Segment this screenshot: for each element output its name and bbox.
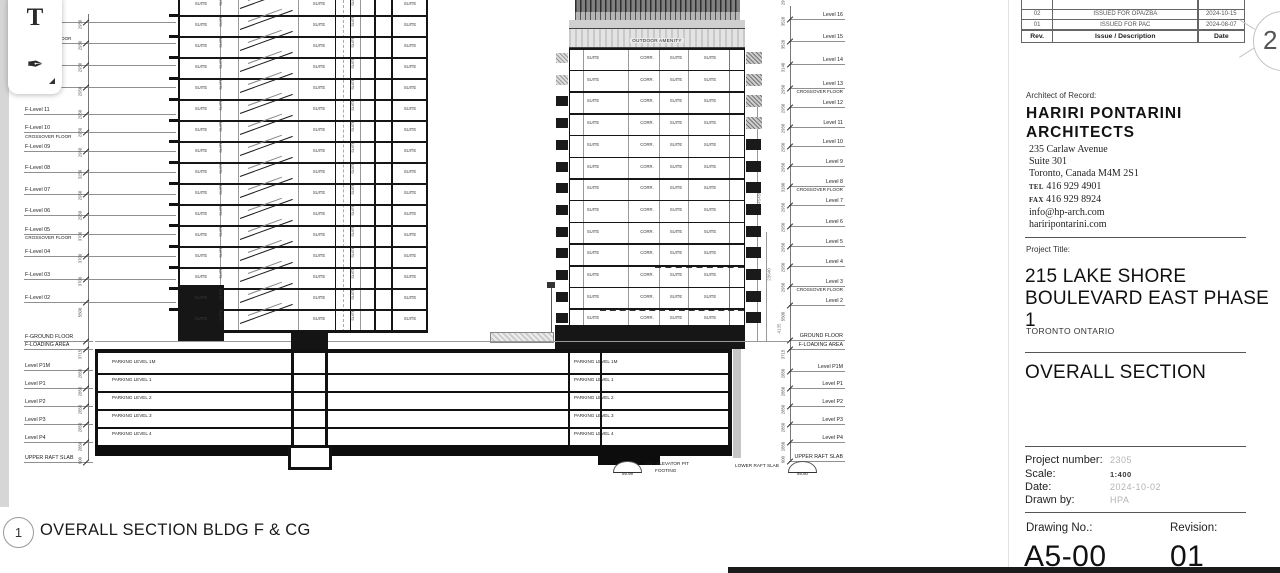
firm-name-line2: ARCHITECTS [1026, 123, 1182, 142]
suite-label: SUITE [351, 119, 355, 133]
suite-label: SUITE [184, 253, 218, 258]
dimension-text: 2950 [78, 186, 83, 206]
floor-slab-line [178, 246, 428, 248]
level-label: Level 8 [742, 179, 843, 185]
section-linework [790, 6, 791, 460]
level-line [24, 114, 176, 115]
tool-expand-triangle-icon [49, 78, 55, 84]
level-label: UPPER RAFT SLAB [25, 455, 73, 461]
level-line [24, 302, 176, 303]
balcony [556, 248, 568, 258]
balcony-slab-end [169, 56, 178, 59]
corridor-label: CORR. [632, 185, 662, 190]
dimension-text: 2850 [78, 364, 83, 384]
level-line [789, 226, 845, 227]
suite-label: SUITE [692, 250, 728, 255]
divider [1025, 237, 1246, 238]
balcony [556, 205, 568, 215]
floor-slab-line [569, 308, 745, 310]
level-label: Level 2 [742, 298, 843, 304]
level-label: Level P4 [25, 435, 46, 441]
address-line: Toronto, Canada M4M 2S1 [1029, 168, 1139, 180]
architect-address-block: 235 Carlaw Avenue Suite 301 Toronto, Can… [1029, 144, 1139, 231]
suite-label: SUITE [351, 245, 355, 259]
suite-label: SUITE [571, 77, 615, 82]
suite-label: SUITE [571, 272, 615, 277]
suite-label: SUITE [662, 315, 690, 320]
suite-label: SUITE [571, 185, 615, 190]
title-block: 02ISSUED FOR OPA/ZBA2024-10-1501ISSUED F… [1010, 0, 1280, 573]
floor-slab-line [178, 288, 428, 290]
revision-cell: Issue / Description [1052, 30, 1198, 43]
balcony [746, 204, 761, 215]
suite-label: SUITE [303, 43, 335, 48]
level-label: Level 5 [742, 239, 843, 245]
pit-footing-label-line1: CG - ELEVATOR PIT [645, 461, 689, 466]
level-label: F-LOADING AREA [25, 342, 69, 348]
suite-label: SUITE [303, 64, 335, 69]
floor-slab-line [178, 36, 428, 38]
level-line [789, 146, 845, 147]
phone-line: TEL 416 929 4901 [1029, 181, 1139, 194]
suite-label: SUITE [303, 22, 335, 27]
dimension-text: 3250 [78, 165, 83, 185]
parking-level-label: PARKING LEVEL 1 [574, 377, 614, 382]
suite-label: SUITE [351, 77, 355, 91]
dimension-text: 3700 [78, 272, 83, 292]
suite-label: SUITE [571, 142, 615, 147]
floor-slab-line [569, 70, 745, 72]
level-label: Level P3 [742, 417, 843, 423]
level-line [789, 388, 845, 389]
level-line [24, 279, 176, 280]
corridor-label: CORR. [632, 55, 662, 60]
level-label: Level 6 [742, 219, 843, 225]
suite-label: SUITE [394, 1, 426, 6]
dimension-text: 2950 [78, 15, 83, 35]
suite-label: SUITE [394, 211, 426, 216]
suite-label: SUITE [394, 22, 426, 27]
floor-slab-line [569, 200, 745, 202]
balcony-slab-end [169, 35, 178, 38]
section-linework [374, 0, 376, 332]
floor-slab-line [178, 78, 428, 80]
scale-label: Scale: [1025, 468, 1056, 480]
floor-slab-line [178, 141, 428, 143]
level-label: Level 13 [742, 81, 843, 87]
floor-slab-line [178, 204, 428, 206]
section-linework [335, 0, 336, 332]
level-line [789, 166, 845, 167]
level-line [789, 205, 845, 206]
suite-label: SUITE [662, 120, 690, 125]
suite-label: SUITE [219, 56, 223, 70]
suite-label: SUITE [662, 250, 690, 255]
level-line [24, 406, 93, 407]
suite-label: SUITE [219, 266, 223, 280]
suite-label: SUITE [571, 207, 615, 212]
suite-label: SUITE [219, 140, 223, 154]
suite-label: SUITE [219, 14, 223, 28]
floor-slab-line [178, 162, 428, 164]
floor-slab-line [569, 243, 745, 245]
balcony-slab-end [169, 98, 178, 101]
balcony [556, 53, 568, 63]
level-line [789, 424, 845, 425]
suite-label: SUITE [303, 148, 335, 153]
balcony-slab-end [169, 182, 178, 185]
balcony [556, 96, 568, 106]
floor-slab-line [569, 265, 745, 267]
corridor-label: CORR. [632, 120, 662, 125]
corridor-label: CORR. [632, 98, 662, 103]
suite-label: SUITE [692, 142, 728, 147]
suite-label: SUITE [571, 229, 615, 234]
level-line [789, 64, 845, 65]
dimension-text: 600 [78, 451, 83, 471]
website-text: hariripontarini.com [1029, 219, 1139, 231]
level-label: CROSSOVER FLOOR [742, 89, 843, 94]
text-tool-button[interactable]: T [8, 0, 62, 40]
parking-level-label: PARKING LEVEL 4 [112, 431, 152, 436]
floor-slab-line [178, 309, 428, 311]
level-line [24, 151, 176, 152]
section-linework [178, 0, 180, 332]
section-linework [1008, 0, 1009, 567]
section-linework [298, 0, 299, 332]
level-label: Level 9 [742, 159, 843, 165]
level-label: Level P1M [742, 364, 843, 370]
dimension-text: 3700 [78, 227, 83, 247]
suite-label: SUITE [303, 295, 335, 300]
fax-number: 416 929 8924 [1046, 194, 1101, 205]
suite-label: SUITE [219, 224, 223, 238]
suite-label: SUITE [184, 211, 218, 216]
suite-label: SUITE [394, 274, 426, 279]
level-label: F-GROUND FLOOR [25, 334, 73, 340]
section-linework [95, 349, 98, 445]
drawing-no-label: Drawing No.: [1026, 522, 1092, 534]
suite-label: SUITE [219, 161, 223, 175]
floor-slab-line [569, 157, 745, 159]
corridor-label: CORR. [632, 164, 662, 169]
suite-label: SUITE [184, 169, 218, 174]
suite-label: SUITE [184, 127, 218, 132]
level-label: Level 15 [742, 34, 843, 40]
suite-label: SUITE [692, 77, 728, 82]
level-label: F-Level 08 [25, 165, 50, 171]
balcony-slab-end [169, 245, 178, 248]
suite-label: SUITE [571, 294, 615, 299]
balcony-slab-end [169, 203, 178, 206]
section-linework [360, 0, 361, 332]
address-line: Suite 301 [1029, 156, 1139, 168]
elevation-value: 56.80 [797, 471, 808, 476]
suite-label: SUITE [184, 85, 218, 90]
section-linework [95, 349, 732, 353]
level-label: Level P4 [742, 435, 843, 441]
balcony [556, 313, 568, 323]
suite-label: SUITE [219, 0, 223, 7]
dimension-text: 2950 [78, 105, 83, 125]
suite-label: SUITE [351, 0, 355, 7]
suite-label: SUITE [219, 245, 223, 259]
suite-label: SUITE [219, 308, 223, 322]
suite-label: SUITE [351, 287, 355, 301]
suite-label: SUITE [394, 190, 426, 195]
lower-raft-slab-label: LOWER RAFT SLAB [735, 463, 779, 468]
floor-slab-line [569, 222, 745, 224]
stair-line [240, 0, 293, 9]
level-line [789, 266, 845, 267]
level-label: CROSSOVER FLOOR [742, 187, 843, 192]
level-line [24, 370, 93, 371]
suite-label: SUITE [219, 182, 223, 196]
project-title-label: Project Title: [1026, 245, 1070, 254]
section-linework [325, 349, 328, 445]
suite-label: SUITE [219, 119, 223, 133]
dimension-text: 3700 [78, 249, 83, 269]
suite-label: SUITE [394, 316, 426, 321]
balcony-slab-end [169, 14, 178, 17]
corridor-label: CORR. [632, 272, 662, 277]
suite-label: SUITE [303, 85, 335, 90]
elevation-bubble-lower-raft: 56.80 [788, 461, 817, 473]
level-label: Level P1M [25, 363, 50, 369]
floor-slab-line [178, 183, 428, 185]
level-line [789, 41, 845, 42]
suite-label: SUITE [692, 294, 728, 299]
dimension-text: 2950 [78, 58, 83, 78]
level-line [24, 349, 93, 350]
corridor-label: CORR. [632, 250, 662, 255]
suite-label: SUITE [351, 182, 355, 196]
suite-label: SUITE [692, 98, 728, 103]
drawing-caption: OVERALL SECTION BLDG F & CG [40, 521, 311, 540]
tel-label: TEL [1029, 184, 1044, 191]
suite-label: SUITE [394, 127, 426, 132]
suite-label: SUITE [184, 295, 218, 300]
balcony-slab-end [169, 224, 178, 227]
elevation-value: 56.99 [622, 471, 633, 476]
level-label: Level 11 [742, 120, 843, 126]
section-linework [426, 0, 428, 332]
balcony [556, 292, 568, 302]
suite-label: SUITE [662, 185, 690, 190]
architect-firm-name: HARIRI PONTARINI ARCHITECTS [1026, 104, 1182, 142]
level-line [24, 132, 176, 133]
parking-level-label: PARKING LEVEL 2 [112, 395, 152, 400]
suite-label: SUITE [692, 272, 728, 277]
parking-level-label: PARKING LEVEL 1M [574, 359, 617, 364]
divider [1025, 512, 1246, 513]
section-linework [88, 14, 89, 460]
suite-label: SUITE [351, 161, 355, 175]
suite-label: SUITE [662, 77, 690, 82]
level-line [789, 246, 845, 247]
corridor-label: CORR. [632, 142, 662, 147]
balcony [746, 247, 761, 258]
section-linework [569, 20, 745, 28]
suite-label: SUITE [692, 207, 728, 212]
dimension-text: 2950 [78, 206, 83, 226]
level-line [24, 256, 176, 257]
level-label: Level 4 [742, 259, 843, 265]
suite-label: SUITE [394, 85, 426, 90]
floor-slab-line [569, 91, 745, 93]
level-label: Level P3 [25, 417, 46, 423]
suite-label: SUITE [571, 98, 615, 103]
corridor-label: CORR. [632, 294, 662, 299]
parking-level-label: PARKING LEVEL 1 [112, 377, 152, 382]
sheet-title: OVERALL SECTION [1025, 362, 1206, 384]
suite-label: SUITE [219, 98, 223, 112]
suite-label: SUITE [571, 315, 615, 320]
parking-level-label: PARKING LEVEL 3 [574, 413, 614, 418]
section-linework [728, 349, 732, 445]
suite-label: SUITE [351, 266, 355, 280]
floor-slab-line [569, 113, 745, 115]
level-line [24, 424, 93, 425]
balcony-slab-end [169, 161, 178, 164]
stair-line [248, 0, 282, 1]
balcony-slab-end [169, 266, 178, 269]
suite-label: SUITE [662, 55, 690, 60]
dimension-text: 2950 [78, 123, 83, 143]
suite-label: SUITE [394, 148, 426, 153]
divider [1025, 446, 1246, 447]
level-label: Level 14 [742, 57, 843, 63]
dimension-text: 2850 [78, 382, 83, 402]
level-line [24, 462, 93, 463]
suite-label: SUITE [394, 232, 426, 237]
balcony [556, 140, 568, 150]
level-line [789, 305, 845, 306]
suite-label: SUITE [184, 22, 218, 27]
text-tool-icon: T [27, 4, 44, 31]
address-line: 235 Carlaw Avenue [1029, 144, 1139, 156]
suite-label: SUITE [303, 106, 335, 111]
suite-label: SUITE [394, 106, 426, 111]
dimension-text: 3715 [78, 345, 83, 365]
level-label: Level 7 [742, 198, 843, 204]
parking-level-label: PARKING LEVEL 3 [112, 413, 152, 418]
suite-label: SUITE [184, 43, 218, 48]
suite-label: SUITE [219, 203, 223, 217]
suite-label: SUITE [184, 232, 218, 237]
section-linework [568, 349, 570, 445]
suite-label: SUITE [692, 315, 728, 320]
draw-tool-button[interactable]: ✒ [8, 44, 62, 88]
level-line [24, 442, 93, 443]
section-linework [291, 332, 328, 349]
section-linework [95, 391, 732, 393]
level-label: Level P2 [742, 399, 843, 405]
project-location: TORONTO ONTARIO [1026, 326, 1115, 336]
suite-label: SUITE [692, 120, 728, 125]
suite-label: SUITE [394, 43, 426, 48]
level-line [789, 19, 845, 20]
corridor-label: CORR. [632, 77, 662, 82]
level-label: F-Level 06 [25, 208, 50, 214]
dimension-text: 2950 [78, 82, 83, 102]
outdoor-amenity-label: OUTDOOR AMENITY [630, 38, 683, 43]
annotation-toolbar: T ✒ [8, 0, 62, 94]
level-label: CROSSOVER FLOOR [25, 235, 71, 240]
corridor-label: CORR. [632, 207, 662, 212]
dimension-text: 2950 [78, 143, 83, 163]
floor-slab-line [178, 99, 428, 101]
project-number-label: Project number: [1025, 454, 1103, 466]
suite-label: SUITE [571, 250, 615, 255]
suite-label: SUITE [219, 35, 223, 49]
project-number-value: 2305 [1110, 455, 1132, 465]
floor-slab-line [178, 15, 428, 17]
fax-line: FAX 416 929 8924 [1029, 194, 1139, 207]
suite-label: SUITE [571, 164, 615, 169]
dimension-text: 5500 [78, 303, 83, 323]
detail-ref-number: 1 [15, 525, 22, 540]
level-line [789, 371, 845, 372]
architect-of-record-label: Architect of Record: [1026, 91, 1096, 100]
section-linework [555, 325, 745, 349]
suite-label: SUITE [351, 140, 355, 154]
pit-footing-label-line2: FOOTING [655, 468, 676, 473]
floor-slab-line [178, 267, 428, 269]
scale-row: Scale: 1:400 [1025, 468, 1250, 481]
floor-slab-line [569, 178, 745, 180]
level-label: F-LOADING AREA [742, 342, 843, 348]
fax-label: FAX [1029, 197, 1044, 204]
suite-label: SUITE [351, 224, 355, 238]
suite-label: SUITE [351, 35, 355, 49]
revision-number: 01 [1170, 540, 1204, 573]
drawn-by-row: Drawn by: HPA [1025, 494, 1250, 507]
floor-slab-line [178, 57, 428, 59]
drawn-by-label: Drawn by: [1025, 494, 1075, 506]
parking-level-label: PARKING LEVEL 4 [574, 431, 614, 436]
suite-label: SUITE [184, 1, 218, 6]
tel-number: 416 929 4901 [1046, 181, 1101, 192]
section-linework [178, 285, 224, 341]
parking-level-label: PARKING LEVEL 2 [574, 395, 614, 400]
revision-cell: Rev. [1021, 30, 1053, 43]
outdoor-amenity-band: OUTDOOR AMENITY [569, 28, 745, 48]
pen-icon: ✒ [27, 52, 44, 76]
dimension-text: 2950 [78, 36, 83, 56]
corridor-label: CORR. [632, 315, 662, 320]
revision-label: Revision: [1170, 522, 1217, 534]
balcony-slab-end [169, 287, 178, 290]
suite-label: SUITE [662, 272, 690, 277]
suite-label: SUITE [184, 148, 218, 153]
level-label: Level P2 [25, 399, 46, 405]
balcony [746, 226, 761, 237]
suite-label: SUITE [303, 253, 335, 258]
dimension-text: 2850 [78, 418, 83, 438]
suite-label: SUITE [351, 98, 355, 112]
level-label: F-Level 07 [25, 187, 50, 193]
email-text: info@hp-arch.com [1029, 207, 1139, 219]
level-label: Level 10 [742, 139, 843, 145]
date-label: Date: [1025, 481, 1051, 493]
section-linework [547, 282, 555, 288]
suite-label: SUITE [303, 127, 335, 132]
project-title-line1: 215 LAKE SHORE [1025, 266, 1280, 288]
level-line [789, 406, 845, 407]
suite-label: SUITE [571, 120, 615, 125]
suite-label: SUITE [662, 207, 690, 212]
